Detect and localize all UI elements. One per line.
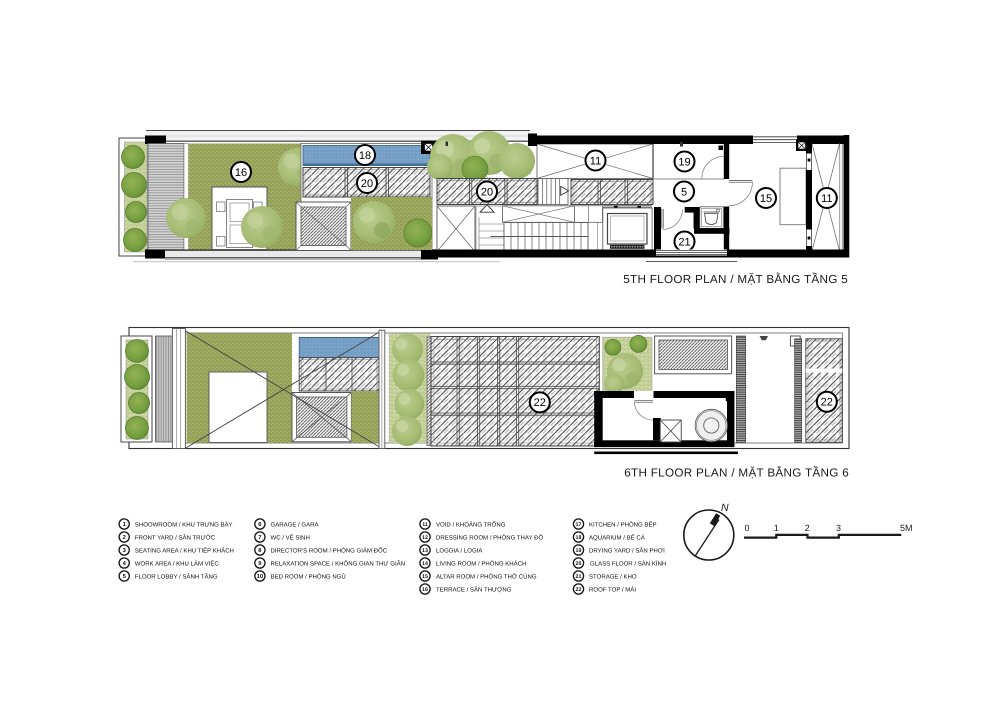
svg-text:14: 14 [422,561,428,567]
svg-text:18: 18 [576,535,582,541]
svg-text:22: 22 [576,587,582,593]
svg-text:11: 11 [422,522,428,528]
svg-text:DRYING YARD / SÂN PHƠI: DRYING YARD / SÂN PHƠI [589,546,665,554]
svg-text:21: 21 [678,236,690,248]
svg-text:2: 2 [123,534,126,541]
svg-text:20: 20 [576,561,582,567]
svg-text:VOID / KHOẢNG TRỐNG: VOID / KHOẢNG TRỐNG [436,520,506,528]
svg-text:DRESSING ROOM / PHÒNG THAY ĐỒ: DRESSING ROOM / PHÒNG THAY ĐỒ [436,533,543,541]
svg-text:17: 17 [576,522,582,528]
svg-text:19: 19 [576,548,582,554]
svg-text:15: 15 [760,193,772,205]
svg-text:GLASS FLOOR / SÀN KÍNH: GLASS FLOOR / SÀN KÍNH [590,559,666,567]
svg-text:3: 3 [836,523,841,533]
svg-text:12: 12 [422,535,428,541]
svg-text:AQUARIUM / BỂ CÁ: AQUARIUM / BỂ CÁ [589,533,646,541]
svg-text:N: N [721,502,729,514]
svg-text:22: 22 [534,397,546,409]
svg-text:LOGGIA / LOGIA: LOGGIA / LOGIA [436,547,483,554]
svg-text:11: 11 [590,155,601,167]
svg-text:0: 0 [745,523,750,533]
svg-text:ALTAR ROOM / PHÒNG THỜ CÚNG: ALTAR ROOM / PHÒNG THỜ CÚNG [436,572,537,580]
svg-text:FRONT YARD / SÂN TRƯỚC: FRONT YARD / SÂN TRƯỚC [135,533,216,541]
svg-text:2: 2 [805,523,810,533]
svg-text:5: 5 [681,186,687,198]
svg-text:ROOF TOP / MÁI: ROOF TOP / MÁI [589,585,636,593]
svg-text:20: 20 [361,178,373,190]
svg-text:FLOOR LOBBY / SẢNH TẦNG: FLOOR LOBBY / SẢNH TẦNG [135,572,218,580]
svg-text:LIVING ROOM / PHÒNG KHÁCH: LIVING ROOM / PHÒNG KHÁCH [436,559,526,567]
svg-text:6TH FLOOR PLAN / MẶT BẰNG TẦNG: 6TH FLOOR PLAN / MẶT BẰNG TẦNG 6 [624,466,849,480]
svg-text:1: 1 [774,523,779,533]
svg-text:10: 10 [257,573,263,580]
svg-text:5TH FLOOR PLAN / MẶT BẰNG TẦNG: 5TH FLOOR PLAN / MẶT BẰNG TẦNG 5 [623,272,848,286]
svg-text:11: 11 [821,193,832,205]
svg-text:19: 19 [678,156,690,168]
svg-text:21: 21 [576,574,582,580]
svg-text:WC / VỆ SINH: WC / VỆ SINH [271,533,310,541]
svg-text:15: 15 [422,574,428,580]
svg-text:GARAGE / GARA: GARAGE / GARA [271,521,320,528]
svg-text:7: 7 [258,535,261,541]
svg-text:STORAGE / KHO: STORAGE / KHO [589,573,637,580]
svg-text:5M: 5M [900,523,913,533]
svg-text:BED ROOM / PHÒNG NGỦ: BED ROOM / PHÒNG NGỦ [271,572,346,580]
svg-text:DIRECTOR'S ROOM / PHÒNG GIÁM Đ: DIRECTOR'S ROOM / PHÒNG GIÁM ĐỐC [271,546,388,554]
svg-text:13: 13 [422,548,428,554]
svg-text:22: 22 [821,397,833,409]
svg-text:16: 16 [422,587,428,593]
svg-text:SHOOWROOM / KHU TRƯNG BÀY: SHOOWROOM / KHU TRƯNG BÀY [135,520,233,528]
svg-text:SEATING AREA / KHU TIẾP KHÁCH: SEATING AREA / KHU TIẾP KHÁCH [135,546,234,554]
svg-text:16: 16 [235,167,247,179]
svg-text:TERRACE / SÂN THƯỢNG: TERRACE / SÂN THƯỢNG [436,585,512,593]
svg-text:WORK AREA / KHU LÀM VIỆC: WORK AREA / KHU LÀM VIỆC [135,559,220,567]
svg-text:18: 18 [359,150,371,162]
svg-text:20: 20 [481,186,493,198]
svg-text:KITCHEN / PHÒNG BẾP: KITCHEN / PHÒNG BẾP [589,520,657,528]
svg-text:RELAXATION SPACE / KHÔNG GIAN: RELAXATION SPACE / KHÔNG GIAN THƯ GIÃN [271,559,406,567]
